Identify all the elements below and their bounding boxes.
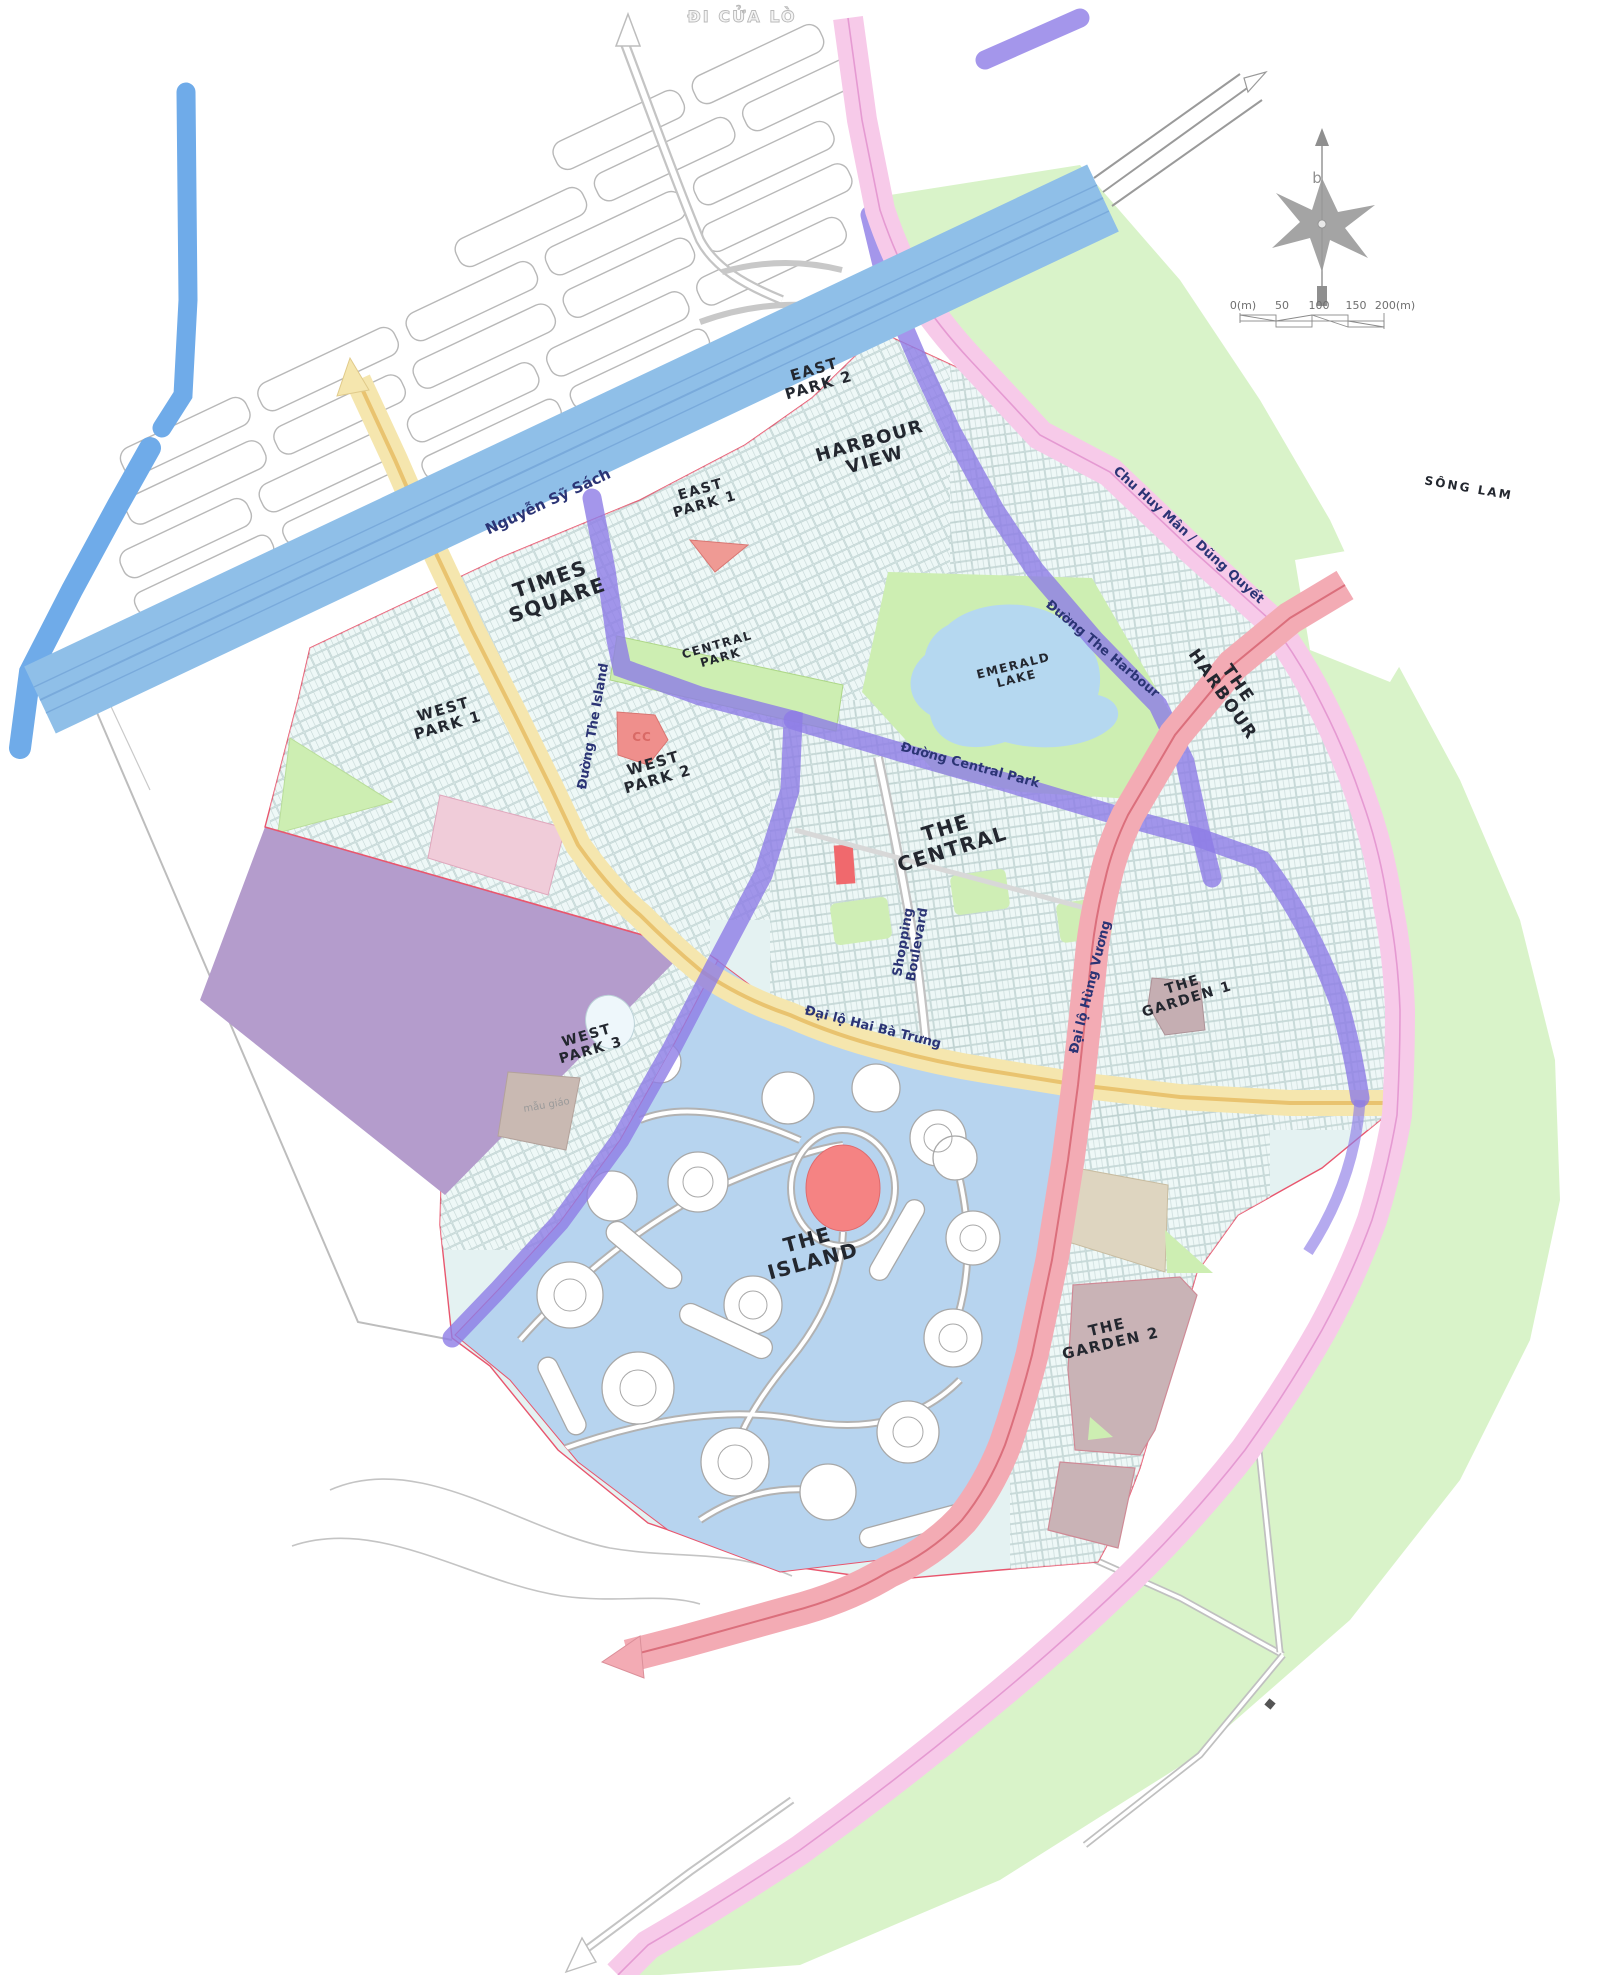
scale-bar-ticks: 0(m)50100150200(m) [1230, 299, 1415, 312]
master-plan-map: 0(m)50100150200(m) ĐI CỬA LÒNguyễn Sỹ Sá… [0, 0, 1619, 1975]
scale-tick-150: 150 [1346, 299, 1367, 312]
label-compass-letter: b [1312, 169, 1322, 187]
scale-tick-0(m): 0(m) [1230, 299, 1256, 312]
label-di-cua-lo: ĐI CỬA LÒ [687, 5, 796, 26]
scale-tick-100: 100 [1309, 299, 1330, 312]
island-landmark-oval [806, 1145, 880, 1231]
scale-bar [1240, 313, 1384, 329]
label-song-lam: SÔNG LAM [1423, 472, 1514, 502]
scale-tick-200(m): 200(m) [1375, 299, 1415, 312]
scale-tick-50: 50 [1275, 299, 1289, 312]
label-cc-block: CC [632, 730, 652, 744]
compass-rose [1272, 128, 1375, 306]
